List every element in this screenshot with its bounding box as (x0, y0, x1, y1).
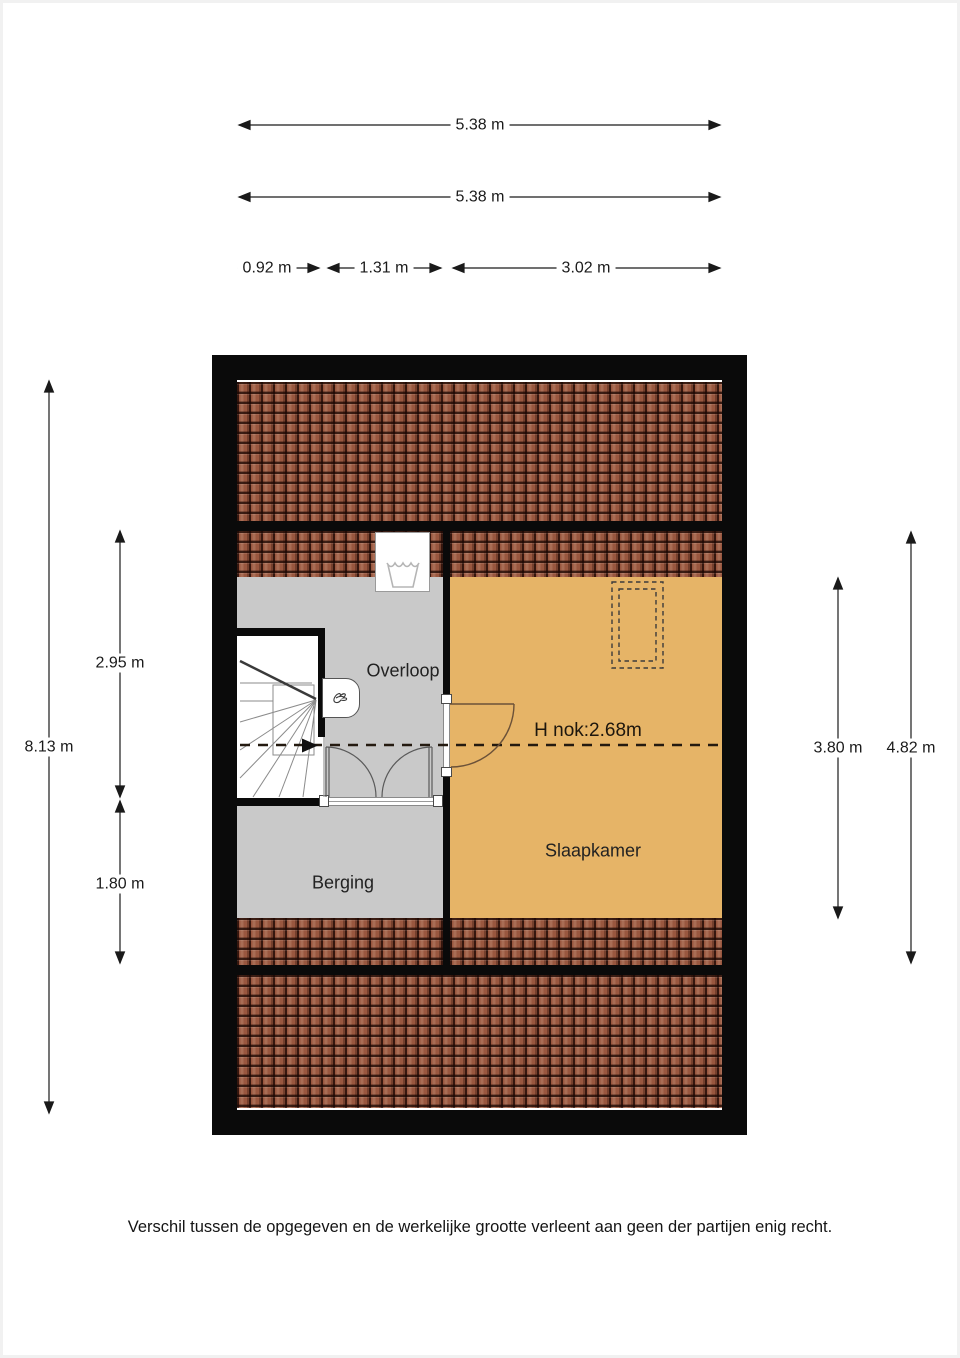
staircase (237, 628, 325, 798)
slaapkamer-door-jamb-cap-bottom (441, 767, 452, 777)
dim-total-width-2: 5.38 m (451, 188, 510, 207)
wall-horizontal-lower (237, 965, 722, 975)
berging-floor (237, 806, 443, 918)
slaapkamer-floor (450, 577, 722, 918)
roof-strip-right-lower (450, 918, 722, 965)
dim-left-upper: 2.95 m (91, 654, 150, 673)
room-label-berging: Berging (312, 873, 374, 894)
washing-machine-box (375, 532, 430, 592)
dim-right-outer: 4.82 m (882, 739, 941, 758)
dim-total-width-1: 5.38 m (451, 116, 510, 135)
dim-right-inner: 3.80 m (809, 739, 868, 758)
roof-tiles-top (237, 382, 722, 521)
slaapkamer-door-jamb (443, 694, 450, 777)
wall-overloop-berging-left (237, 798, 322, 806)
dim-left-total: 8.13 m (20, 738, 79, 757)
floorplan-outer-walls (212, 355, 747, 1135)
wall-vertical-upper (443, 521, 450, 694)
wall-horizontal-upper (237, 521, 722, 531)
room-label-slaapkamer: Slaapkamer (545, 841, 641, 862)
dim-segment-3: 3.02 m (557, 259, 616, 278)
roof-strip-left-lower (237, 918, 443, 965)
laundry-tub-icon (385, 557, 421, 591)
dim-segment-1: 0.92 m (238, 259, 297, 278)
roof-tiles-bottom (237, 975, 722, 1108)
wall-vertical-lower (443, 777, 450, 965)
floorplan-page: 5.38 m 5.38 m 0.92 m 1.31 m 3.02 m 8.13 … (0, 0, 960, 1358)
double-door-cap-right (433, 795, 443, 807)
disclaimer-text: Verschil tussen de opgegeven en de werke… (0, 1218, 960, 1237)
slaapkamer-door-jamb-cap-top (441, 694, 452, 704)
dim-segment-2: 1.31 m (355, 259, 414, 278)
roof-strip-right-upper (450, 531, 722, 577)
double-door-cap-left (319, 795, 329, 807)
ridge-height-label: H nok:2.68m (534, 720, 642, 742)
floorplan-interior (237, 380, 722, 1110)
double-door-sill (322, 797, 436, 806)
ventilation-unit (322, 678, 360, 718)
ventilation-unit-icon (332, 691, 350, 706)
dim-left-lower: 1.80 m (91, 875, 150, 894)
room-label-overloop: Overloop (366, 661, 439, 682)
